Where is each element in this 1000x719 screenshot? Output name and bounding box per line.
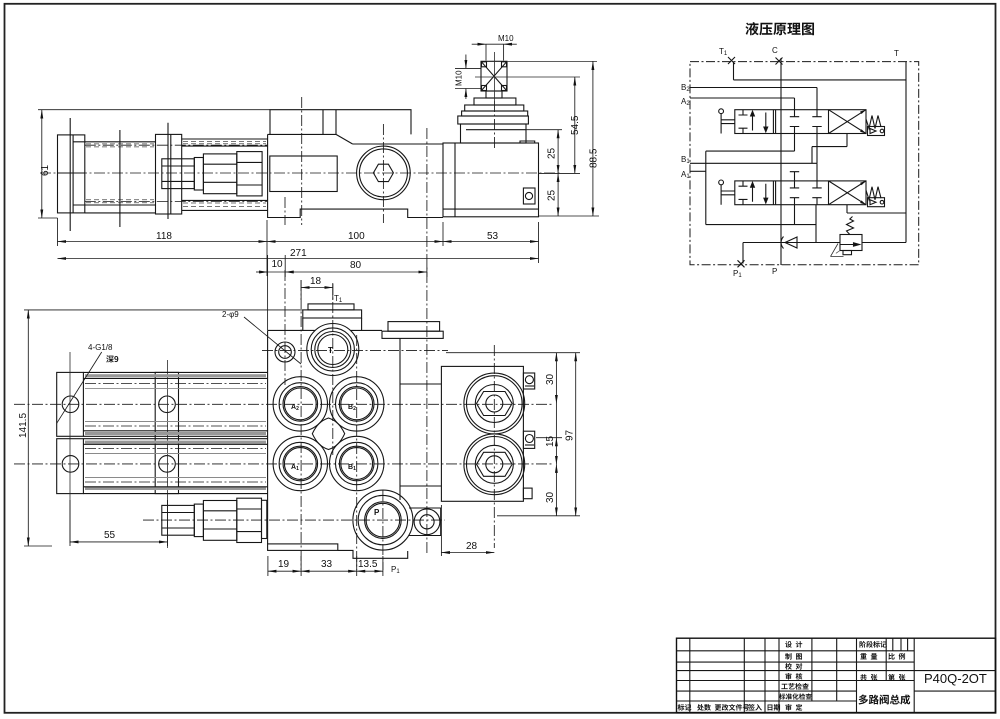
svg-text:P: P — [374, 508, 380, 517]
svg-text:T: T — [328, 346, 333, 355]
svg-text:25: 25 — [547, 147, 558, 159]
svg-text:19: 19 — [278, 559, 290, 570]
svg-text:P40Q-2OT: P40Q-2OT — [924, 671, 987, 686]
svg-text:P: P — [772, 267, 777, 276]
svg-text:61: 61 — [40, 164, 51, 176]
svg-text:18: 18 — [310, 276, 322, 287]
svg-text:55: 55 — [104, 530, 116, 541]
svg-text:13.5: 13.5 — [358, 559, 378, 570]
svg-text:A2: A2 — [291, 404, 299, 412]
svg-text:88.5: 88.5 — [589, 148, 600, 168]
svg-text:4-G1/8: 4-G1/8 — [88, 343, 113, 352]
svg-text:T1: T1 — [334, 294, 343, 304]
svg-text:A1: A1 — [291, 464, 299, 472]
svg-text:T: T — [894, 49, 899, 58]
svg-text:100: 100 — [348, 231, 365, 242]
svg-text:P1: P1 — [391, 565, 400, 575]
svg-text:28: 28 — [466, 541, 478, 552]
svg-text:A1: A1 — [681, 170, 690, 180]
svg-text:M10: M10 — [455, 70, 464, 86]
svg-text:B1: B1 — [348, 464, 356, 472]
svg-text:2-φ9: 2-φ9 — [222, 310, 239, 319]
svg-text:97: 97 — [564, 429, 575, 441]
svg-text:141.5: 141.5 — [18, 413, 29, 438]
svg-text:A2: A2 — [681, 97, 690, 107]
svg-text:53: 53 — [487, 231, 499, 242]
svg-text:54.5: 54.5 — [570, 115, 581, 135]
svg-text:B1: B1 — [681, 155, 690, 165]
svg-text:15: 15 — [545, 435, 556, 447]
svg-text:T1: T1 — [719, 47, 728, 57]
svg-text:118: 118 — [156, 231, 172, 242]
svg-text:B2: B2 — [348, 404, 356, 412]
svg-text:30: 30 — [545, 491, 556, 503]
svg-text:80: 80 — [350, 260, 362, 271]
svg-text:30: 30 — [545, 373, 556, 385]
svg-text:P1: P1 — [733, 269, 742, 279]
svg-text:M10: M10 — [498, 34, 514, 43]
svg-text:C: C — [772, 46, 778, 55]
svg-text:B2: B2 — [681, 83, 690, 93]
svg-text:271: 271 — [290, 248, 307, 259]
svg-text:10: 10 — [272, 259, 284, 270]
svg-text:25: 25 — [547, 189, 558, 201]
svg-text:33: 33 — [321, 559, 333, 570]
